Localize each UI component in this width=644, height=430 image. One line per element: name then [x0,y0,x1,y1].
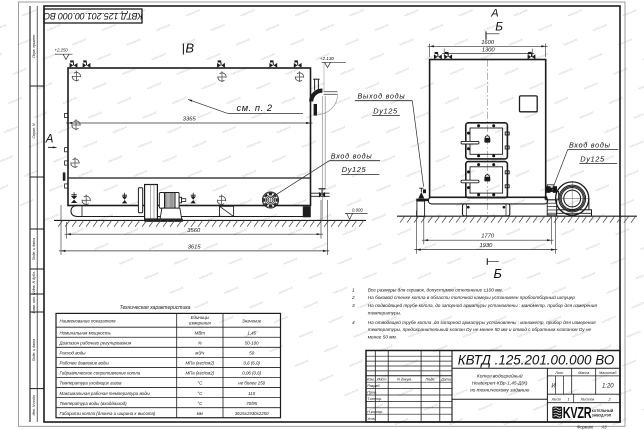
svg-text:Взам. инв. N: Взам. инв. N [32,292,36,313]
svg-text:МВт: МВт [195,330,206,335]
svg-text:Котел водогрейный: Котел водогрейный [477,372,523,379]
svg-text:Справ. N: Справ. N [32,123,36,138]
svg-text:115: 115 [248,391,256,396]
svg-text:3: 3 [352,303,355,308]
svg-text:Техническая характеристика: Техническая характеристика [120,305,191,311]
svg-text:см. п. 2: см. п. 2 [237,103,273,113]
svg-text:Значение: Значение [242,318,262,323]
svg-text:Диапазон рабочего регулировани: Диапазон рабочего регулирования [59,340,132,345]
svg-text:А3: А3 [601,424,608,429]
svg-text:Температура уходящих газов: Температура уходящих газов [60,381,123,386]
svg-text:менее 50 мм.: менее 50 мм. [368,335,397,340]
svg-text:Б: Б [495,20,503,34]
svg-text:КВТД .125.201.00.000 ВО: КВТД .125.201.00.000 ВО [458,352,615,367]
svg-text:измерения: измерения [189,320,212,325]
svg-text:3615х1930х2250: 3615х1930х2250 [235,411,269,416]
svg-text:3560: 3560 [187,228,201,234]
svg-text:Инв. N дубл.: Инв. N дубл. [32,271,36,292]
svg-text:Подп. и дата: Подп. и дата [32,238,36,261]
svg-text:1930: 1930 [479,243,493,249]
svg-text:Утв.: Утв. [367,417,375,421]
svg-text:3365: 3365 [183,117,197,123]
svg-text:КОТЕЛЬНЫЙ: КОТЕЛЬНЫЙ [592,409,614,413]
svg-text:температуры.: температуры. [368,310,402,315]
svg-text:3615: 3615 [188,244,202,250]
svg-text:Dy125: Dy125 [373,106,398,115]
svg-text:ЗАВОД РЭП: ЗАВОД РЭП [592,413,612,417]
svg-text:И: И [551,384,556,390]
svg-text:Масштаб: Масштаб [599,371,617,375]
svg-text:50: 50 [249,351,254,356]
svg-text:1600: 1600 [481,40,495,46]
svg-text:1300: 1300 [482,47,496,53]
svg-text:+2.130: +2.130 [320,56,335,61]
svg-text:Дата: Дата [440,378,451,382]
svg-text:2: 2 [351,295,355,300]
svg-text:0,06 (0,6): 0,06 (0,6) [242,371,261,376]
svg-text:В: В [185,41,194,56]
svg-text:0.000: 0.000 [352,208,363,213]
svg-text:Все размеры для справок, допус: Все размеры для справок, допустимое откл… [368,288,503,293]
svg-text:Наименование показателя: Наименование показателя [60,318,117,323]
svg-text:Лист: Лист [551,398,562,402]
svg-text:Изм.: Изм. [367,378,375,382]
svg-text:Формат: Формат [577,424,594,429]
svg-text:70/95: 70/95 [246,401,258,406]
svg-text:Расход воды: Расход воды [60,351,87,356]
svg-text:А: А [490,7,498,19]
svg-text:KVZR: KVZR [563,404,592,421]
svg-text:%: % [198,340,202,345]
svg-text:Heatexpert-КВр-1,45-Д(К): Heatexpert-КВр-1,45-Д(К) [472,380,528,386]
svg-text:КВТД.125.201.00.000 ВО: КВТД.125.201.00.000 ВО [43,11,143,21]
svg-text:1,45: 1,45 [247,330,256,335]
svg-text:+2.250: +2.250 [55,48,69,53]
svg-text:Вход воды: Вход воды [331,151,373,160]
svg-text:2: 2 [607,398,610,402]
svg-text:Подп.: Подп. [425,378,435,382]
svg-text:1:20: 1:20 [602,384,614,390]
svg-text:мм: мм [197,411,203,416]
svg-text:1: 1 [352,288,355,293]
svg-text:На отводящей трубе котла ,до з: На отводящей трубе котла ,до запорной ар… [368,319,596,325]
svg-text:Номинальная мощность: Номинальная мощность [60,330,112,335]
svg-text:МПа (кгс/см2): МПа (кгс/см2) [185,371,214,376]
svg-text:Перв. примен.: Перв. примен. [32,34,36,58]
svg-text:Н.контр.: Н.контр. [367,410,383,414]
svg-text:Гидравлическое сопротивление к: Гидравлическое сопротивление котла [60,371,141,376]
svg-text:по техническому заданию: по техническому заданию [470,387,530,393]
svg-text:МПа (кгс/см2): МПа (кгс/см2) [185,361,214,366]
svg-text:1: 1 [567,398,569,402]
svg-text:Разраб.: Разраб. [367,384,380,388]
svg-text:не более 250: не более 250 [238,381,265,386]
svg-text:0,6 (6,0): 0,6 (6,0) [244,361,261,366]
svg-text:N докум.: N докум. [397,378,412,382]
svg-text:°С: °С [197,391,203,396]
svg-text:На подводящей трубе котла, д: На подводящей трубе котла, до запорной а… [368,302,598,308]
svg-text:°С: °С [197,401,203,406]
svg-text:Лист: Лист [376,378,387,382]
svg-text:На боковой стенке котла в обла: На боковой стенке котла в области топочн… [368,294,576,300]
svg-text:Рабочее давление воды: Рабочее давление воды [60,361,110,366]
svg-text:Выход воды: Выход воды [358,91,406,100]
svg-text:Единицы: Единицы [191,315,210,320]
svg-text:Габариты котла (длинна и ширин: Габариты котла (длинна и ширина х высота… [60,411,156,416]
svg-text:Подп. и дата: Подп. и дата [32,339,36,362]
svg-text:Пров.: Пров. [367,391,377,395]
svg-text:А: А [45,133,54,145]
svg-text:Лит.: Лит. [554,371,564,375]
svg-text:Листов: Листов [580,398,595,402]
svg-text:Максимальная рабочая температу: Максимальная рабочая температура воды [60,391,151,396]
svg-text:температуры, предохранительный: температуры, предохранительный клапан Dу… [368,326,592,332]
svg-text:Масса: Масса [578,371,589,375]
svg-text:4: 4 [352,320,355,325]
svg-text:50-100: 50-100 [245,340,259,345]
svg-text:Dy125: Dy125 [580,155,605,164]
svg-text:Вход воды: Вход воды [569,140,611,149]
svg-text:Инв. N подл.: Инв. N подл. [32,394,36,415]
svg-text:°С: °С [197,381,203,386]
svg-text:Dy125: Dy125 [342,165,367,174]
svg-text:Температура воды (вход/выход): Температура воды (вход/выход) [60,401,128,406]
svg-text:1770: 1770 [481,234,495,240]
svg-text:м3/ч: м3/ч [195,351,205,356]
svg-text:Т.контр.: Т.контр. [367,397,382,401]
svg-text:Б: Б [494,266,502,281]
